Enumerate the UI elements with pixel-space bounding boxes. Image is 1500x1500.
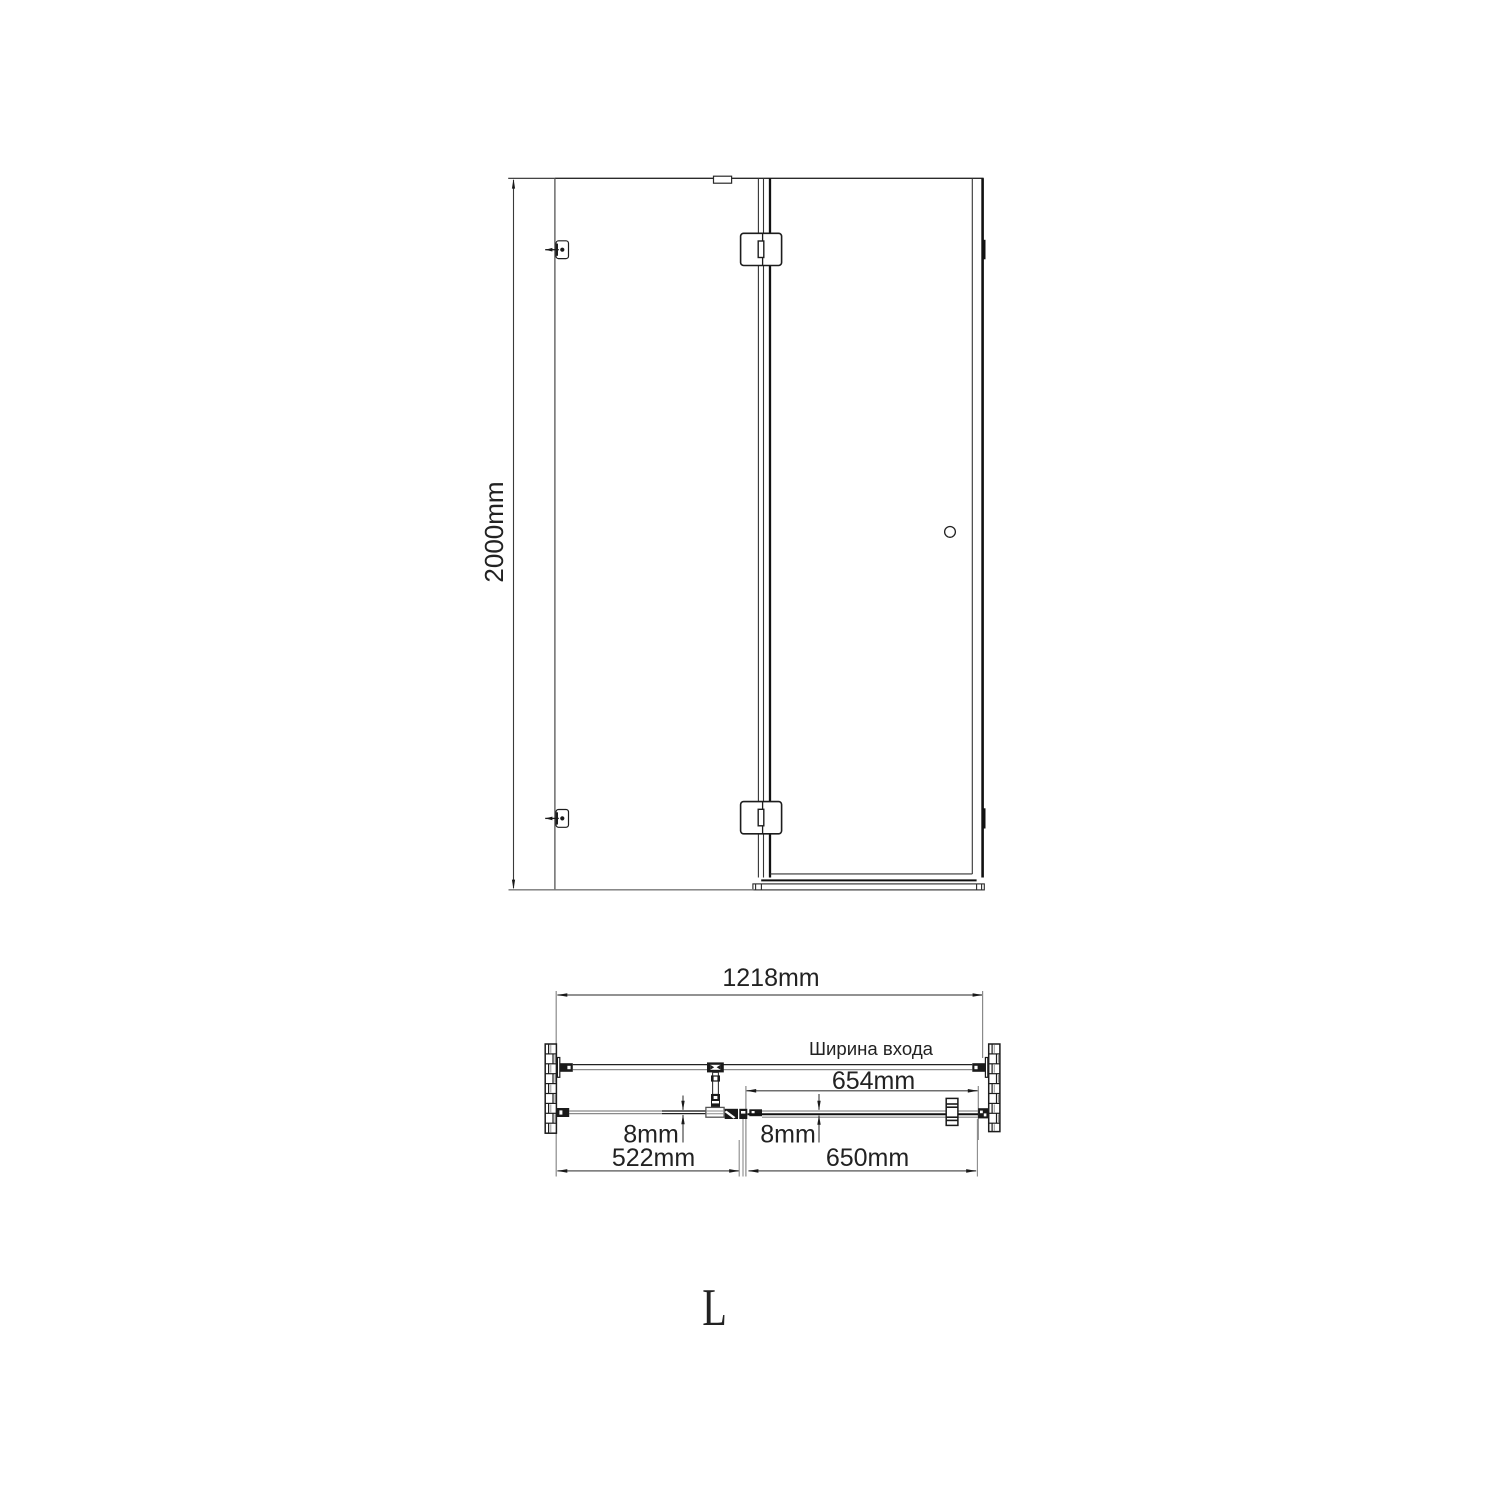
- svg-text:2000mm: 2000mm: [479, 481, 509, 582]
- svg-text:Ширина входа: Ширина входа: [809, 1038, 934, 1059]
- svg-text:L: L: [702, 1279, 727, 1338]
- svg-text:522mm: 522mm: [612, 1144, 695, 1172]
- svg-text:650mm: 650mm: [826, 1144, 909, 1172]
- svg-text:1218mm: 1218mm: [722, 964, 819, 992]
- svg-text:8mm: 8mm: [760, 1121, 816, 1149]
